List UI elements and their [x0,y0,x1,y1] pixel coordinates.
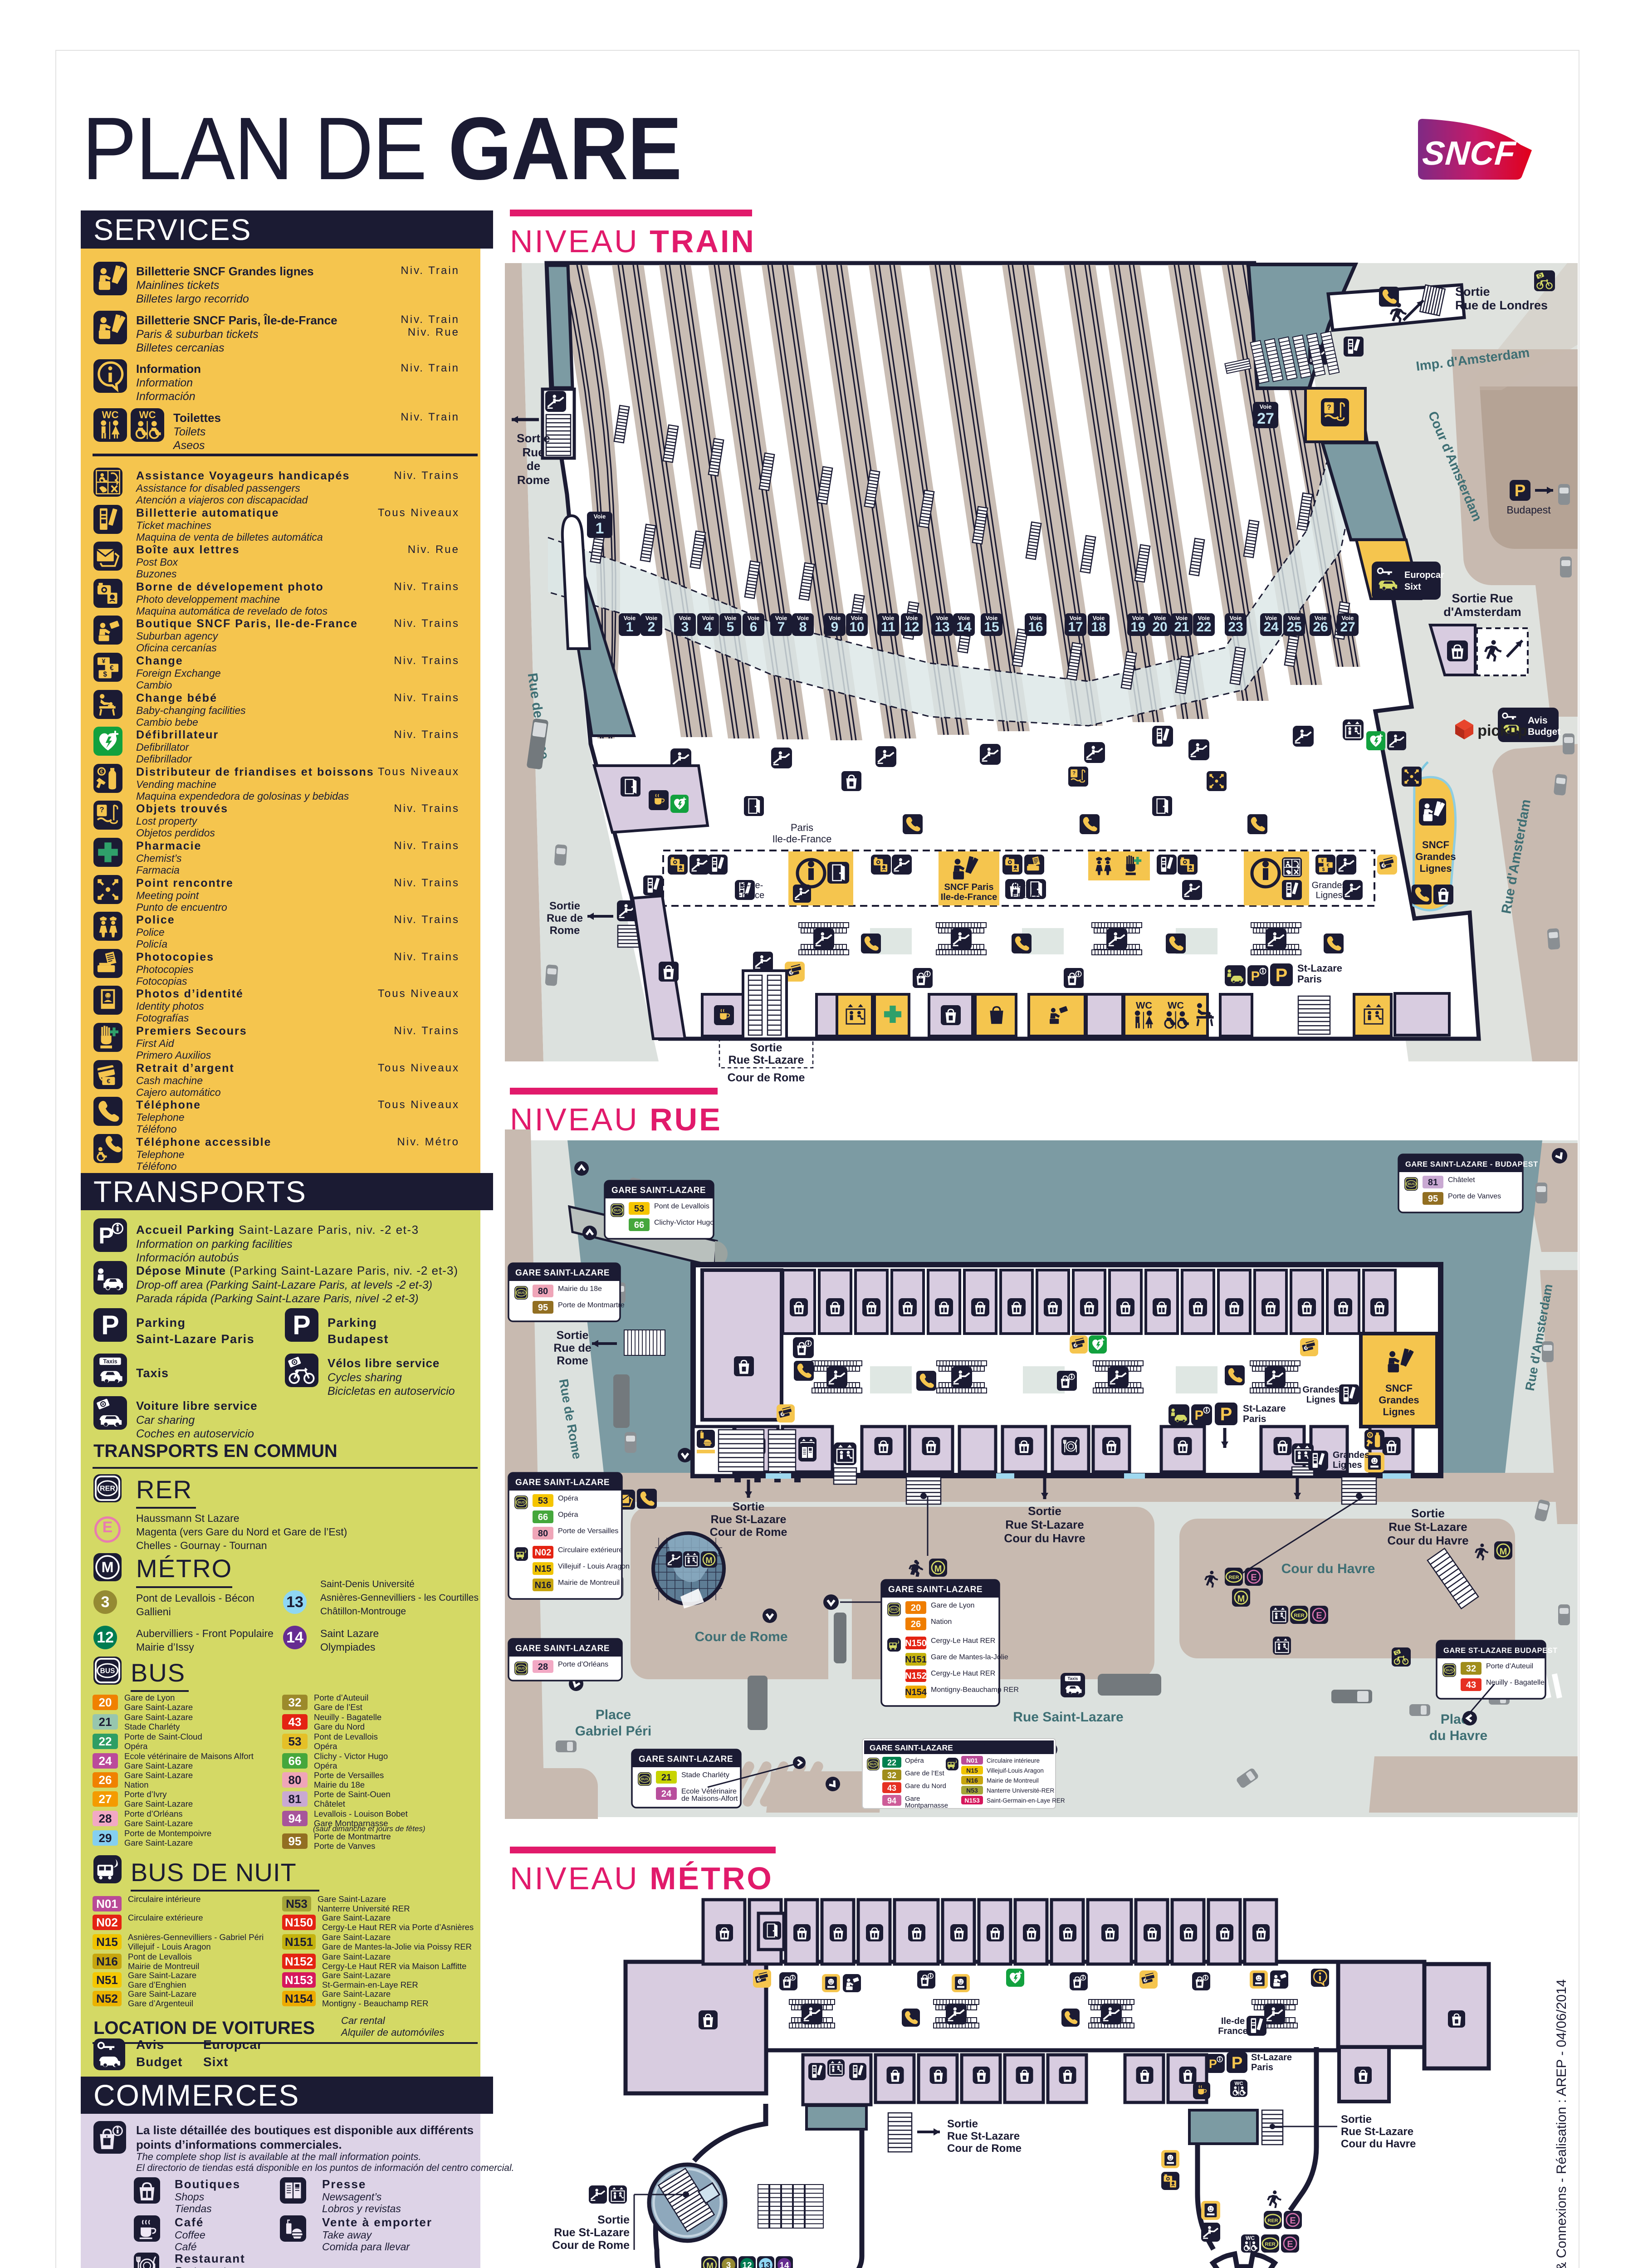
svg-text:Cour du Havre: Cour du Havre [1004,1531,1085,1545]
svg-text:France: France [1012,890,1040,900]
svg-text:94: 94 [887,1796,896,1805]
svg-text:80: 80 [538,1286,548,1296]
svg-text:28: 28 [538,1662,548,1672]
svg-text:25: 25 [1286,620,1301,635]
svg-text:Montigny-Beauchamp RER: Montigny-Beauchamp RER [931,1686,1019,1694]
svg-text:9: 9 [831,620,839,635]
svg-text:N153: N153 [964,1797,980,1804]
svg-text:N15: N15 [535,1564,552,1574]
svg-text:Villejuif-Louis Aragon: Villejuif-Louis Aragon [987,1767,1044,1774]
svg-text:Clichy-Victor Hugo: Clichy-Victor Hugo [654,1219,714,1227]
svg-text:22: 22 [887,1758,896,1767]
svg-text:Sortie: Sortie [1411,1506,1445,1520]
svg-text:Rue St-Lazare: Rue St-Lazare [1341,2126,1413,2138]
svg-text:N152: N152 [905,1671,927,1681]
svg-text:3: 3 [726,2261,731,2268]
svg-text:Budapest: Budapest [1506,504,1551,516]
svg-text:Villejuif - Louis Aragon: Villejuif - Louis Aragon [558,1563,630,1570]
svg-text:N154: N154 [905,1687,927,1697]
svg-text:Saint-Germain-en-Laye RER: Saint-Germain-en-Laye RER [987,1797,1065,1804]
svg-text:GARE SAINT-LAZARE: GARE SAINT-LAZARE [515,1478,610,1487]
svg-text:Montparnasse: Montparnasse [905,1802,948,1809]
svg-text:8: 8 [799,620,807,635]
svg-text:Neuilly - Bagatelle: Neuilly - Bagatelle [1486,1679,1545,1686]
svg-text:Ile-de-: Ile-de- [738,880,763,890]
svg-text:Cour de Rome: Cour de Rome [728,1071,805,1084]
svg-text:Grandes: Grandes [1333,1450,1369,1460]
svg-text:Avis: Avis [1528,715,1548,726]
svg-text:Ile-de: Ile-de [1221,2016,1245,2026]
svg-text:Cergy-Le Haut RER: Cergy-Le Haut RER [931,1670,995,1677]
svg-text:pickup: pickup [1477,722,1527,739]
svg-text:Cour de Rome: Cour de Rome [947,2142,1022,2155]
svg-text:Ile-de-: Ile-de- [1013,880,1039,890]
svg-text:19: 19 [1130,620,1145,635]
svg-text:Rue St-Lazare: Rue St-Lazare [947,2130,1020,2142]
svg-text:SNCF: SNCF [1385,1383,1413,1394]
svg-text:Cour de Rome: Cour de Rome [552,2239,630,2252]
svg-text:St-Lazare: St-Lazare [1297,963,1342,974]
svg-text:Opéra: Opéra [558,1495,578,1502]
svg-text:13: 13 [761,2261,770,2268]
svg-text:Gare du Nord: Gare du Nord [905,1782,946,1790]
svg-text:3: 3 [681,620,689,635]
svg-text:4: 4 [704,620,712,635]
svg-text:6: 6 [750,620,758,635]
svg-text:80: 80 [538,1529,548,1539]
svg-text:53: 53 [538,1496,548,1506]
svg-text:Sortie: Sortie [947,2118,978,2130]
svg-text:Circulaire extérieure: Circulaire extérieure [558,1546,623,1554]
svg-text:12: 12 [742,2261,752,2268]
svg-text:France: France [736,890,764,900]
svg-text:Rue Saint-Lazare: Rue Saint-Lazare [1013,1710,1123,1725]
svg-text:RER: RER [1228,1575,1239,1580]
svg-text:GARE SAINT-LAZARE: GARE SAINT-LAZARE [515,1644,610,1653]
svg-text:M: M [1500,1547,1507,1557]
svg-text:France: France [1218,2026,1248,2036]
svg-text:Paris: Paris [1243,1414,1266,1424]
svg-text:Rue St-Lazare: Rue St-Lazare [1005,1518,1084,1531]
svg-text:Sortie: Sortie [1455,285,1490,298]
svg-text:66: 66 [634,1220,644,1230]
svg-text:Cour du Havre: Cour du Havre [1341,2138,1416,2150]
svg-text:Opéra: Opéra [905,1757,924,1765]
svg-text:Mairie du 18e: Mairie du 18e [558,1285,602,1293]
svg-text:Châtelet: Châtelet [1448,1176,1475,1184]
svg-text:Grandes: Grandes [1312,880,1347,890]
svg-text:Porte d’Orléans: Porte d’Orléans [558,1661,608,1668]
svg-text:Sortie: Sortie [750,1041,782,1054]
svg-text:14: 14 [956,620,972,635]
svg-text:Ecole Vétérinaire: Ecole Vétérinaire [681,1788,737,1795]
svg-text:Circulaire intérieure: Circulaire intérieure [987,1757,1040,1764]
svg-text:Rome: Rome [550,924,580,937]
svg-text:11: 11 [881,620,895,635]
svg-text:GARE SAINT-LAZARE - BUDAPEST: GARE SAINT-LAZARE - BUDAPEST [1405,1160,1538,1168]
svg-text:GARE SAINT-LAZARE: GARE SAINT-LAZARE [515,1268,610,1278]
svg-text:2: 2 [648,620,655,635]
svg-text:GARE ST-LAZARE BUDAPEST: GARE ST-LAZARE BUDAPEST [1443,1647,1558,1655]
svg-text:N53: N53 [966,1787,978,1794]
svg-text:Pont de Levallois: Pont de Levallois [654,1202,709,1210]
svg-text:N151: N151 [905,1655,927,1665]
svg-text:E: E [1316,1611,1322,1621]
svg-text:21: 21 [1174,620,1189,635]
svg-text:E: E [1287,2239,1293,2249]
svg-text:16: 16 [1028,620,1043,635]
svg-text:18: 18 [1091,620,1106,635]
svg-text:Porte d’Auteuil: Porte d’Auteuil [1486,1662,1533,1670]
svg-text:M: M [934,1564,942,1574]
svg-text:N02: N02 [535,1548,552,1558]
svg-text:Voie: Voie [1260,403,1272,410]
svg-text:Rue de: Rue de [553,1342,591,1354]
svg-text:Sortie: Sortie [597,2214,630,2226]
svg-text:7: 7 [777,620,785,635]
svg-text:M: M [1237,1594,1245,1604]
svg-text:Rue St-Lazare: Rue St-Lazare [728,1054,804,1066]
svg-text:Budget: Budget [1528,727,1560,737]
svg-text:Nanterre Université-RER: Nanterre Université-RER [987,1787,1055,1794]
svg-text:32: 32 [1466,1664,1476,1674]
svg-text:Grandes: Grandes [1379,1394,1419,1406]
svg-text:66: 66 [538,1512,548,1522]
svg-text:GARE SAINT-LAZARE: GARE SAINT-LAZARE [639,1755,733,1764]
svg-text:5: 5 [727,620,734,635]
svg-text:24: 24 [661,1789,672,1799]
svg-text:N16: N16 [966,1777,978,1784]
svg-text:SNCF: SNCF [1421,134,1517,172]
svg-text:Cour de Rome: Cour de Rome [694,1629,787,1644]
svg-text:20: 20 [911,1603,921,1613]
svg-text:M: M [706,2261,714,2268]
svg-text:RER: RER [1265,2242,1275,2247]
svg-text:SNCF: SNCF [1422,839,1449,850]
svg-text:Sortie: Sortie [1028,1504,1061,1518]
svg-text:15: 15 [984,620,999,635]
svg-text:du Havre: du Havre [1429,1728,1487,1743]
svg-text:Lignes: Lignes [1333,1460,1362,1470]
svg-text:95: 95 [1428,1194,1438,1204]
svg-text:N15: N15 [966,1767,978,1774]
svg-text:N01: N01 [966,1757,978,1764]
svg-text:Sortie: Sortie [1341,2113,1372,2126]
svg-text:27: 27 [1257,410,1274,427]
svg-text:81: 81 [1428,1178,1438,1188]
svg-text:Rue St-Lazare: Rue St-Lazare [711,1513,787,1526]
svg-text:Sixt: Sixt [1404,582,1421,592]
svg-text:Sortie: Sortie [733,1501,765,1513]
svg-text:Mairie de Montreuil: Mairie de Montreuil [987,1777,1039,1784]
svg-text:Opéra: Opéra [558,1511,578,1519]
svg-text:14: 14 [779,2261,789,2268]
svg-text:13: 13 [934,620,949,635]
svg-text:N16: N16 [535,1580,552,1590]
svg-text:Cergy-Le Haut RER: Cergy-Le Haut RER [931,1637,995,1645]
svg-text:Sortie: Sortie [557,1329,589,1342]
svg-text:Nation: Nation [931,1618,952,1626]
svg-text:N150: N150 [905,1638,927,1648]
svg-text:St-Lazare: St-Lazare [1243,1403,1286,1414]
svg-text:43: 43 [1466,1680,1476,1690]
svg-text:Sortie Rue: Sortie Rue [1452,591,1513,605]
svg-text:Rue St-Lazare: Rue St-Lazare [1389,1520,1467,1534]
svg-text:RER: RER [1294,1613,1304,1618]
svg-text:Grandes: Grandes [1415,851,1456,862]
svg-text:Rue St-Lazare: Rue St-Lazare [554,2226,630,2239]
svg-text:23: 23 [1228,620,1243,635]
svg-text:Lignes: Lignes [1306,1395,1335,1405]
svg-text:Ile-de-France: Ile-de-France [772,833,832,845]
svg-text:Paris: Paris [1297,973,1322,985]
svg-text:43: 43 [887,1784,896,1793]
svg-text:21: 21 [661,1773,671,1783]
svg-text:Place: Place [596,1707,631,1722]
svg-text:Cour du Havre: Cour du Havre [1281,1561,1375,1576]
svg-text:Porte de Vanves: Porte de Vanves [1448,1193,1501,1200]
svg-text:GARE SAINT-LAZARE: GARE SAINT-LAZARE [888,1585,983,1594]
svg-text:Cour de Rome: Cour de Rome [710,1526,787,1539]
svg-text:St-Lazare: St-Lazare [1251,2053,1292,2063]
svg-text:20: 20 [1152,620,1167,635]
svg-text:Voie: Voie [594,513,606,520]
svg-text:95: 95 [538,1303,548,1313]
svg-text:Gabriel Péri: Gabriel Péri [575,1724,651,1739]
svg-text:M: M [706,1556,713,1565]
svg-text:Ile-de-France: Ile-de-France [941,892,997,902]
svg-text:Lignes: Lignes [1316,890,1343,900]
svg-text:Rue de Londres: Rue de Londres [1455,298,1548,312]
svg-text:Grandes: Grandes [1302,1385,1339,1395]
svg-text:Rue de: Rue de [547,912,583,924]
svg-text:Paris: Paris [791,822,813,833]
svg-text:12: 12 [904,620,919,635]
svg-text:Lignes: Lignes [1383,1406,1415,1417]
svg-text:GARE SAINT-LAZARE: GARE SAINT-LAZARE [870,1743,953,1752]
svg-text:Stade Charléty: Stade Charléty [681,1771,729,1779]
svg-text:Gares & Connexions - Réalisati: Gares & Connexions - Réalisation : AREP … [1554,1979,1569,2268]
svg-text:27: 27 [1340,620,1355,635]
svg-text:E: E [1251,1573,1257,1583]
svg-text:1: 1 [596,520,604,537]
svg-text:Porte de Montmartre: Porte de Montmartre [558,1301,625,1309]
svg-text:22: 22 [1196,620,1211,635]
svg-text:Gare de l’Est: Gare de l’Est [905,1769,945,1777]
svg-text:E: E [1290,2216,1296,2226]
svg-text:24: 24 [1263,620,1279,635]
svg-text:RER: RER [1267,2218,1278,2224]
svg-text:1: 1 [626,620,634,635]
svg-text:d'Amsterdam: d'Amsterdam [1443,605,1521,619]
svg-text:53: 53 [634,1204,644,1214]
svg-text:GARE SAINT-LAZARE: GARE SAINT-LAZARE [611,1186,706,1195]
svg-text:10: 10 [849,620,864,635]
svg-text:Paris: Paris [1251,2063,1273,2072]
svg-text:17: 17 [1068,620,1083,635]
svg-text:SNCF Paris: SNCF Paris [944,882,994,892]
svg-text:Europcar: Europcar [1404,570,1444,580]
svg-text:Cour du Havre: Cour du Havre [1387,1534,1468,1547]
svg-text:Mairie de Montreuil: Mairie de Montreuil [558,1579,620,1587]
svg-text:26: 26 [1313,620,1328,635]
svg-text:32: 32 [887,1771,896,1780]
svg-text:Gare de Lyon: Gare de Lyon [931,1602,974,1609]
svg-text:26: 26 [911,1619,921,1629]
svg-text:Lignes: Lignes [1420,863,1452,874]
svg-text:Porte de Versailles: Porte de Versailles [558,1527,618,1535]
svg-text:Rome: Rome [557,1354,588,1367]
svg-text:de Maisons-Alfort: de Maisons-Alfort [681,1795,738,1803]
svg-text:Gare de Mantes-la-Jolie: Gare de Mantes-la-Jolie [931,1653,1008,1661]
svg-text:Sortie: Sortie [549,900,580,912]
